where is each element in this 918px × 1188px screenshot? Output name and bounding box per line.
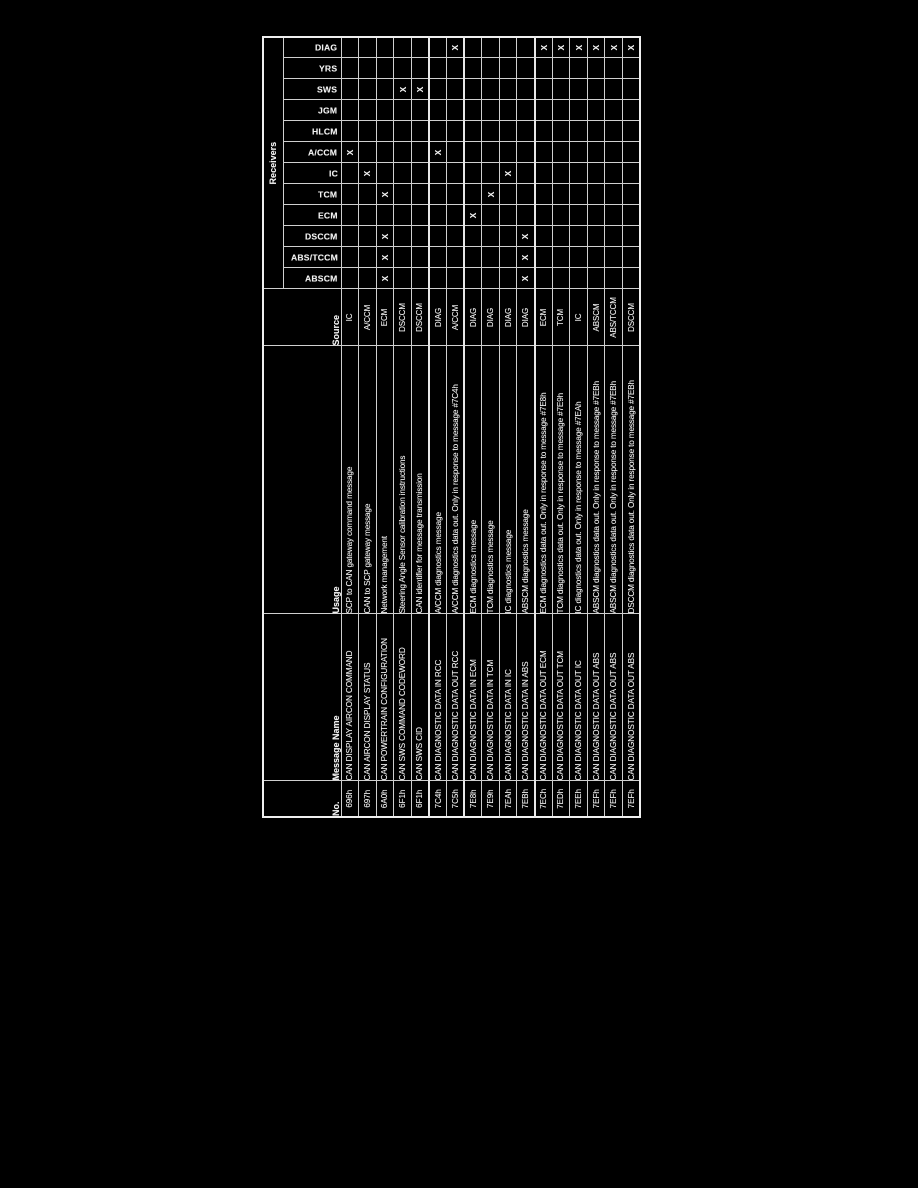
message-no: 7EBh <box>517 781 535 817</box>
message-row-6f1h-dsccm: 6F1hCAN SWS CIDCAN identifier for messag… <box>411 37 429 817</box>
message-name: CAN DIAGNOSTIC DATA OUT ABS <box>587 614 605 781</box>
message-source: DIAG <box>499 289 517 346</box>
receiver-mark-hlcm <box>359 121 377 142</box>
receiver-mark-yrs <box>482 58 500 79</box>
message-no: 6A0h <box>376 781 394 817</box>
scanned-manual-page: No. Message Name Usage Source Receivers … <box>0 0 918 1188</box>
receiver-mark-dsccm <box>394 226 412 247</box>
receiver-mark-hlcm <box>535 121 553 142</box>
receiver-mark-yrs <box>376 58 394 79</box>
receiver-mark-yrs <box>341 58 359 79</box>
receiver-mark-a-ccm <box>394 142 412 163</box>
receiver-mark-abs-tccm <box>552 247 570 268</box>
message-name: CAN DIAGNOSTIC DATA OUT IC <box>570 614 588 781</box>
receiver-mark-jgm <box>464 100 482 121</box>
receiver-mark-diag <box>341 37 359 58</box>
receiver-mark-sws <box>587 79 605 100</box>
receiver-column-label: IC <box>329 169 338 179</box>
message-no: 7EAh <box>499 781 517 817</box>
message-no: 6F1h <box>394 781 412 817</box>
receiver-mark-ecm <box>376 205 394 226</box>
receiver-mark-hlcm <box>447 121 465 142</box>
receiver-mark-tcm <box>429 184 447 205</box>
receiver-mark-abscm: X <box>376 268 394 289</box>
receiver-mark-abscm <box>587 268 605 289</box>
receiver-column-label: SWS <box>317 85 337 95</box>
receiver-mark-yrs <box>552 58 570 79</box>
receiver-mark-jgm <box>552 100 570 121</box>
receiver-mark-diag <box>411 37 429 58</box>
message-usage: IC diagnostics message <box>499 346 517 614</box>
receiver-mark-sws <box>517 79 535 100</box>
column-header-no: No. <box>263 781 341 817</box>
message-name: CAN SWS COMMAND CODEWORD <box>394 614 412 781</box>
receiver-mark-ecm <box>429 205 447 226</box>
receiver-mark-diag <box>376 37 394 58</box>
receiver-mark-yrs <box>499 58 517 79</box>
receiver-mark-ecm <box>359 205 377 226</box>
receiver-mark-diag: X <box>535 37 553 58</box>
receiver-mark-hlcm <box>411 121 429 142</box>
receiver-mark-abscm <box>570 268 588 289</box>
receiver-mark-tcm: X <box>376 184 394 205</box>
column-header-message-name: Message Name <box>263 614 341 781</box>
receiver-mark-ic: X <box>359 163 377 184</box>
receiver-mark-tcm <box>411 184 429 205</box>
receiver-mark-diag: X <box>570 37 588 58</box>
message-no: 7C4h <box>429 781 447 817</box>
receiver-mark-abs-tccm <box>447 247 465 268</box>
receiver-mark-abscm <box>499 268 517 289</box>
message-row-6a0h-ecm: 6A0hCAN POWERTRAIN CONFIGURATIONNetwork … <box>376 37 394 817</box>
receiver-mark-ic <box>341 163 359 184</box>
message-row-7efh-abscm: 7EFhCAN DIAGNOSTIC DATA OUT ABSABSCM dia… <box>587 37 605 817</box>
receiver-mark-a-ccm <box>359 142 377 163</box>
receiver-mark-sws <box>482 79 500 100</box>
receiver-mark-hlcm <box>341 121 359 142</box>
message-row-7e9h-diag: 7E9hCAN DIAGNOSTIC DATA IN TCMTCM diagno… <box>482 37 500 817</box>
receiver-mark-ecm <box>499 205 517 226</box>
message-source: DIAG <box>482 289 500 346</box>
message-source: ECM <box>535 289 553 346</box>
receiver-mark-dsccm: X <box>517 226 535 247</box>
column-header-source: Source <box>263 289 341 346</box>
receiver-mark-diag: X <box>623 37 641 58</box>
receiver-mark-sws <box>605 79 623 100</box>
receiver-mark-jgm <box>411 100 429 121</box>
receiver-mark-abscm <box>623 268 641 289</box>
message-row-7edh-tcm: 7EDhCAN DIAGNOSTIC DATA OUT TCMTCM diagn… <box>552 37 570 817</box>
table-body: 696hCAN DISPLAY AIRCON COMMANDSCP to CAN… <box>341 37 640 817</box>
message-usage: IC diagnostics data out. Only in respons… <box>570 346 588 614</box>
receiver-mark-tcm <box>359 184 377 205</box>
receiver-column-header-abscm: ABSCM <box>283 268 341 289</box>
message-source: TCM <box>552 289 570 346</box>
receiver-mark-abs-tccm <box>623 247 641 268</box>
receiver-mark-ic <box>517 163 535 184</box>
receiver-mark-yrs <box>587 58 605 79</box>
message-no: 7EDh <box>552 781 570 817</box>
receiver-mark-ecm <box>482 205 500 226</box>
message-row-7e8h-diag: 7E8hCAN DIAGNOSTIC DATA IN ECMECM diagno… <box>464 37 482 817</box>
message-usage: ABSCM diagnostics message <box>517 346 535 614</box>
receiver-mark-abs-tccm: X <box>376 247 394 268</box>
receiver-mark-diag <box>482 37 500 58</box>
receiver-mark-dsccm <box>552 226 570 247</box>
receiver-mark-jgm <box>394 100 412 121</box>
receiver-mark-ic <box>623 163 641 184</box>
receiver-mark-abs-tccm <box>587 247 605 268</box>
message-usage: CAN to SCP gateway message <box>359 346 377 614</box>
receiver-mark-dsccm: X <box>376 226 394 247</box>
receiver-mark-diag: X <box>587 37 605 58</box>
receiver-mark-sws <box>429 79 447 100</box>
receiver-mark-tcm <box>464 184 482 205</box>
receiver-mark-tcm <box>394 184 412 205</box>
message-row-7c4h-diag: 7C4hCAN DIAGNOSTIC DATA IN RCCA/CCM diag… <box>429 37 447 817</box>
receiver-mark-a-ccm <box>623 142 641 163</box>
receiver-mark-tcm <box>587 184 605 205</box>
receiver-column-label: DIAG <box>315 43 337 53</box>
receiver-mark-ic <box>552 163 570 184</box>
receiver-mark-a-ccm: X <box>341 142 359 163</box>
receiver-mark-dsccm <box>482 226 500 247</box>
receiver-mark-a-ccm <box>552 142 570 163</box>
receiver-mark-a-ccm: X <box>429 142 447 163</box>
message-usage: ABSCM diagnostics data out. Only in resp… <box>587 346 605 614</box>
message-name: CAN DIAGNOSTIC DATA OUT ECM <box>535 614 553 781</box>
message-row-697h-a-ccm: 697hCAN AIRCON DISPLAY STATUSCAN to SCP … <box>359 37 377 817</box>
receiver-mark-yrs <box>359 58 377 79</box>
receiver-mark-ecm <box>623 205 641 226</box>
receiver-mark-jgm <box>341 100 359 121</box>
receiver-mark-abs-tccm <box>570 247 588 268</box>
receiver-mark-abscm <box>429 268 447 289</box>
receiver-mark-a-ccm <box>447 142 465 163</box>
message-usage: Network management <box>376 346 394 614</box>
message-row-7efh-dsccm: 7EFhCAN DIAGNOSTIC DATA OUT ABSDSCCM dia… <box>623 37 641 817</box>
message-source: DIAG <box>517 289 535 346</box>
receiver-mark-hlcm <box>482 121 500 142</box>
receiver-mark-a-ccm <box>517 142 535 163</box>
receiver-mark-sws: X <box>411 79 429 100</box>
receiver-mark-dsccm <box>464 226 482 247</box>
receiver-mark-ecm: X <box>464 205 482 226</box>
receiver-mark-ecm <box>411 205 429 226</box>
message-source: ECM <box>376 289 394 346</box>
message-source: ABS/TCCM <box>605 289 623 346</box>
receiver-mark-dsccm <box>587 226 605 247</box>
message-name: CAN DIAGNOSTIC DATA IN ECM <box>464 614 482 781</box>
receiver-mark-jgm <box>570 100 588 121</box>
receiver-mark-tcm <box>552 184 570 205</box>
receiver-mark-diag <box>517 37 535 58</box>
receiver-mark-abs-tccm <box>605 247 623 268</box>
message-source: A/CCM <box>447 289 465 346</box>
receiver-column-header-ic: IC <box>283 163 341 184</box>
receiver-mark-hlcm <box>587 121 605 142</box>
receiver-mark-abscm <box>341 268 359 289</box>
message-source: IC <box>570 289 588 346</box>
receiver-mark-a-ccm <box>376 142 394 163</box>
message-usage: ECM diagnostics data out. Only in respon… <box>535 346 553 614</box>
receiver-column-header-diag: DIAG <box>283 37 341 58</box>
message-name: CAN DIAGNOSTIC DATA OUT ABS <box>605 614 623 781</box>
receiver-mark-tcm <box>605 184 623 205</box>
receiver-mark-ic <box>570 163 588 184</box>
receiver-mark-tcm <box>623 184 641 205</box>
receiver-mark-jgm <box>605 100 623 121</box>
receiver-column-label: ABS/TCCM <box>291 253 338 263</box>
message-name: CAN DIAGNOSTIC DATA IN ABS <box>517 614 535 781</box>
message-no: 696h <box>341 781 359 817</box>
receiver-mark-dsccm <box>623 226 641 247</box>
receiver-mark-hlcm <box>623 121 641 142</box>
receiver-column-label: A/CCM <box>308 148 337 158</box>
receiver-mark-tcm <box>447 184 465 205</box>
receiver-mark-ecm <box>552 205 570 226</box>
receiver-mark-diag <box>394 37 412 58</box>
receiver-mark-abs-tccm <box>535 247 553 268</box>
message-row-7efh-abs-tccm: 7EFhCAN DIAGNOSTIC DATA OUT ABSABSCM dia… <box>605 37 623 817</box>
receiver-mark-hlcm <box>570 121 588 142</box>
receiver-mark-sws <box>552 79 570 100</box>
receiver-mark-dsccm <box>570 226 588 247</box>
message-name: CAN SWS CID <box>411 614 429 781</box>
table-header-row-1: No. Message Name Usage Source Receivers <box>263 37 283 817</box>
receiver-mark-diag <box>464 37 482 58</box>
receiver-column-header-yrs: YRS <box>283 58 341 79</box>
message-usage: CAN identifier for message transmission <box>411 346 429 614</box>
receiver-mark-dsccm <box>411 226 429 247</box>
receiver-column-label: YRS <box>319 64 337 74</box>
receiver-column-label: JGM <box>318 106 337 116</box>
receiver-mark-diag: X <box>605 37 623 58</box>
message-name: CAN DIAGNOSTIC DATA IN RCC <box>429 614 447 781</box>
receiver-mark-a-ccm <box>482 142 500 163</box>
receiver-mark-ecm <box>447 205 465 226</box>
receiver-mark-dsccm <box>447 226 465 247</box>
receiver-mark-sws <box>499 79 517 100</box>
receiver-mark-abs-tccm <box>394 247 412 268</box>
receiver-mark-sws <box>376 79 394 100</box>
message-usage: TCM diagnostics message <box>482 346 500 614</box>
message-source: ABSCM <box>587 289 605 346</box>
receiver-mark-dsccm <box>359 226 377 247</box>
message-no: 7EFh <box>623 781 641 817</box>
receiver-mark-tcm <box>570 184 588 205</box>
receiver-mark-jgm <box>623 100 641 121</box>
receiver-mark-abscm: X <box>517 268 535 289</box>
message-name: CAN DIAGNOSTIC DATA OUT ABS <box>623 614 641 781</box>
receiver-mark-abs-tccm <box>482 247 500 268</box>
receiver-column-header-jgm: JGM <box>283 100 341 121</box>
message-row-7eah-diag: 7EAhCAN DIAGNOSTIC DATA IN ICIC diagnost… <box>499 37 517 817</box>
receiver-mark-hlcm <box>394 121 412 142</box>
receiver-mark-ecm <box>394 205 412 226</box>
receiver-column-label: HLCM <box>312 127 338 137</box>
receiver-mark-abscm <box>394 268 412 289</box>
receiver-mark-abscm <box>482 268 500 289</box>
receiver-mark-sws <box>623 79 641 100</box>
receiver-mark-jgm <box>517 100 535 121</box>
message-usage: A/CCM diagnostics message <box>429 346 447 614</box>
message-source: DSCCM <box>411 289 429 346</box>
receiver-mark-ic <box>605 163 623 184</box>
receiver-mark-diag: X <box>552 37 570 58</box>
message-row-7eeh-ic: 7EEhCAN DIAGNOSTIC DATA OUT ICIC diagnos… <box>570 37 588 817</box>
receiver-mark-jgm <box>429 100 447 121</box>
receiver-mark-a-ccm <box>570 142 588 163</box>
receiver-column-header-hlcm: HLCM <box>283 121 341 142</box>
can-message-table: No. Message Name Usage Source Receivers … <box>262 36 641 818</box>
receiver-mark-ic <box>411 163 429 184</box>
receiver-mark-ecm <box>570 205 588 226</box>
message-source: DSCCM <box>394 289 412 346</box>
receiver-column-label: ECM <box>318 211 338 221</box>
message-name: CAN DIAGNOSTIC DATA OUT RCC <box>447 614 465 781</box>
receiver-mark-sws: X <box>394 79 412 100</box>
receiver-mark-yrs <box>570 58 588 79</box>
message-usage: Steering Angle Sensor calibration instru… <box>394 346 412 614</box>
receiver-mark-jgm <box>376 100 394 121</box>
receiver-column-label: ABSCM <box>305 274 338 284</box>
receiver-mark-yrs <box>605 58 623 79</box>
receiver-mark-hlcm <box>464 121 482 142</box>
receiver-mark-yrs <box>464 58 482 79</box>
message-source: DIAG <box>429 289 447 346</box>
receiver-mark-yrs <box>429 58 447 79</box>
receiver-mark-abscm <box>411 268 429 289</box>
receiver-column-header-ecm: ECM <box>283 205 341 226</box>
can-message-table-unrotated: No. Message Name Usage Source Receivers … <box>262 37 641 818</box>
message-usage: TCM diagnostics data out. Only in respon… <box>552 346 570 614</box>
receiver-mark-abscm <box>464 268 482 289</box>
message-no: 7EEh <box>570 781 588 817</box>
receiver-mark-dsccm <box>429 226 447 247</box>
receiver-mark-yrs <box>447 58 465 79</box>
message-row-7ebh-diag: 7EBhCAN DIAGNOSTIC DATA IN ABSABSCM diag… <box>517 37 535 817</box>
receiver-mark-yrs <box>411 58 429 79</box>
receiver-mark-ecm <box>587 205 605 226</box>
receiver-mark-jgm <box>535 100 553 121</box>
receiver-mark-diag <box>359 37 377 58</box>
message-no: 7ECh <box>535 781 553 817</box>
receiver-mark-ecm <box>535 205 553 226</box>
message-usage: DSCCM diagnostics data out. Only in resp… <box>623 346 641 614</box>
receiver-mark-ecm <box>517 205 535 226</box>
receiver-mark-dsccm <box>499 226 517 247</box>
message-source: DIAG <box>464 289 482 346</box>
message-row-696h-ic: 696hCAN DISPLAY AIRCON COMMANDSCP to CAN… <box>341 37 359 817</box>
receiver-mark-abscm <box>552 268 570 289</box>
receiver-mark-ic <box>447 163 465 184</box>
message-no: 7E8h <box>464 781 482 817</box>
receiver-mark-yrs <box>394 58 412 79</box>
receiver-mark-abscm <box>359 268 377 289</box>
message-usage: ECM diagnostics message <box>464 346 482 614</box>
receiver-mark-abs-tccm <box>429 247 447 268</box>
receiver-mark-ic <box>587 163 605 184</box>
receiver-mark-a-ccm <box>605 142 623 163</box>
receiver-mark-ic <box>376 163 394 184</box>
message-row-6f1h-dsccm: 6F1hCAN SWS COMMAND CODEWORDSteering Ang… <box>394 37 412 817</box>
receiver-mark-yrs <box>517 58 535 79</box>
receiver-mark-jgm <box>587 100 605 121</box>
receiver-mark-tcm <box>341 184 359 205</box>
message-name: CAN DIAGNOSTIC DATA IN TCM <box>482 614 500 781</box>
receiver-mark-ecm <box>341 205 359 226</box>
receiver-mark-ic <box>535 163 553 184</box>
receiver-mark-abs-tccm <box>359 247 377 268</box>
message-name: CAN DISPLAY AIRCON COMMAND <box>341 614 359 781</box>
receiver-mark-tcm <box>535 184 553 205</box>
receiver-mark-a-ccm <box>411 142 429 163</box>
receiver-mark-jgm <box>447 100 465 121</box>
receiver-mark-a-ccm <box>464 142 482 163</box>
receiver-mark-abs-tccm <box>341 247 359 268</box>
receiver-mark-dsccm <box>341 226 359 247</box>
receiver-mark-abscm <box>447 268 465 289</box>
receiver-mark-abs-tccm <box>411 247 429 268</box>
receiver-mark-hlcm <box>605 121 623 142</box>
message-no: 7EFh <box>605 781 623 817</box>
message-source: A/CCM <box>359 289 377 346</box>
message-usage: A/CCM diagnostics data out. Only in resp… <box>447 346 465 614</box>
receiver-column-label: DSCCM <box>305 232 338 242</box>
message-row-7c5h-a-ccm: 7C5hCAN DIAGNOSTIC DATA OUT RCCA/CCM dia… <box>447 37 465 817</box>
receiver-column-header-a-ccm: A/CCM <box>283 142 341 163</box>
receiver-mark-sws <box>464 79 482 100</box>
message-row-7ech-ecm: 7EChCAN DIAGNOSTIC DATA OUT ECMECM diagn… <box>535 37 553 817</box>
receiver-mark-hlcm <box>429 121 447 142</box>
receiver-mark-hlcm <box>552 121 570 142</box>
receiver-mark-a-ccm <box>587 142 605 163</box>
receiver-mark-yrs <box>535 58 553 79</box>
receiver-mark-abs-tccm <box>464 247 482 268</box>
receiver-mark-sws <box>535 79 553 100</box>
receiver-mark-hlcm <box>376 121 394 142</box>
message-name: CAN AIRCON DISPLAY STATUS <box>359 614 377 781</box>
receiver-mark-dsccm <box>605 226 623 247</box>
message-source: IC <box>341 289 359 346</box>
receiver-mark-abscm <box>535 268 553 289</box>
receiver-mark-sws <box>359 79 377 100</box>
message-no: 697h <box>359 781 377 817</box>
receiver-column-header-dsccm: DSCCM <box>283 226 341 247</box>
receiver-mark-sws <box>341 79 359 100</box>
receiver-mark-sws <box>447 79 465 100</box>
receiver-mark-ic <box>394 163 412 184</box>
receiver-mark-a-ccm <box>535 142 553 163</box>
receiver-mark-diag <box>499 37 517 58</box>
column-header-usage: Usage <box>263 346 341 614</box>
receiver-mark-abs-tccm: X <box>517 247 535 268</box>
receiver-mark-a-ccm <box>499 142 517 163</box>
receiver-mark-abscm <box>605 268 623 289</box>
receiver-mark-jgm <box>499 100 517 121</box>
receiver-mark-tcm <box>517 184 535 205</box>
receiver-mark-tcm: X <box>482 184 500 205</box>
receiver-column-label: TCM <box>318 190 337 200</box>
receiver-mark-ecm <box>605 205 623 226</box>
receiver-mark-jgm <box>482 100 500 121</box>
receiver-mark-diag <box>429 37 447 58</box>
message-no: 7E9h <box>482 781 500 817</box>
can-message-table-rotated: No. Message Name Usage Source Receivers … <box>262 37 641 818</box>
receiver-mark-jgm <box>359 100 377 121</box>
receiver-mark-hlcm <box>499 121 517 142</box>
